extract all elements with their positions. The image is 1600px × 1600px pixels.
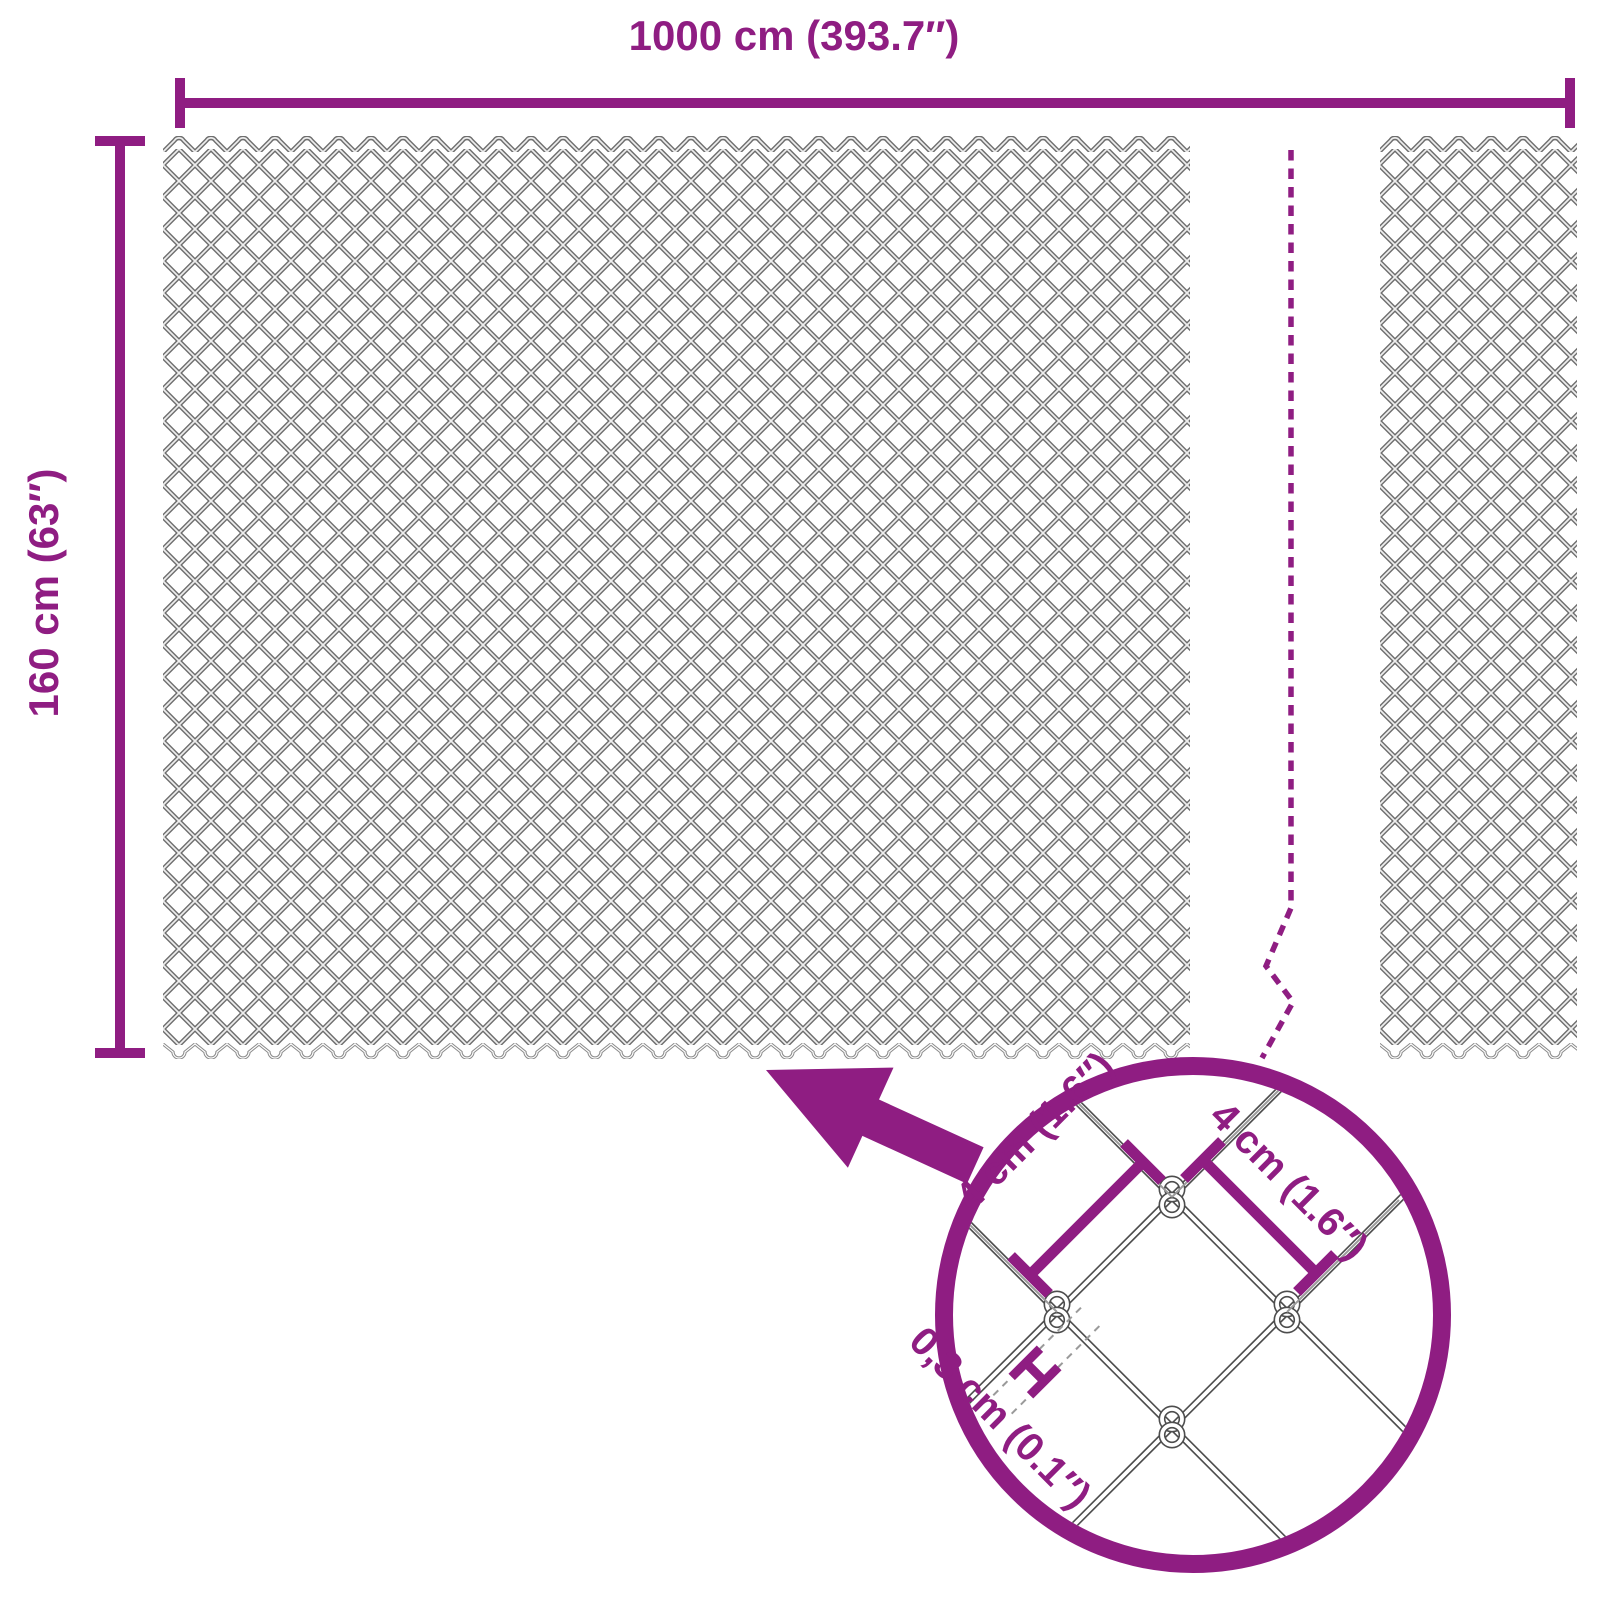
break-line (1262, 150, 1293, 1058)
mesh-fabric (163, 149, 1190, 1045)
mesh-fabric (1380, 149, 1577, 1045)
width-dimension-label: 1000 cm (393.7″) (629, 15, 960, 57)
mesh-panel-main (163, 136, 1190, 1059)
height-dimension-line (95, 141, 145, 1053)
mesh-bottom-edge (1380, 1043, 1577, 1059)
mesh-bottom-edge (163, 1043, 1190, 1059)
product-dimension-diagram: 1000 cm (393.7″) 160 cm (63″) 4 cm (1.6″… (0, 0, 1600, 1600)
width-dimension-line (180, 78, 1570, 128)
height-dimension-label: 160 cm (63″) (23, 469, 65, 718)
zoom-arrow-icon (766, 1068, 984, 1184)
mesh-panel-right (1380, 136, 1577, 1059)
diagram-canvas (0, 0, 1600, 1600)
